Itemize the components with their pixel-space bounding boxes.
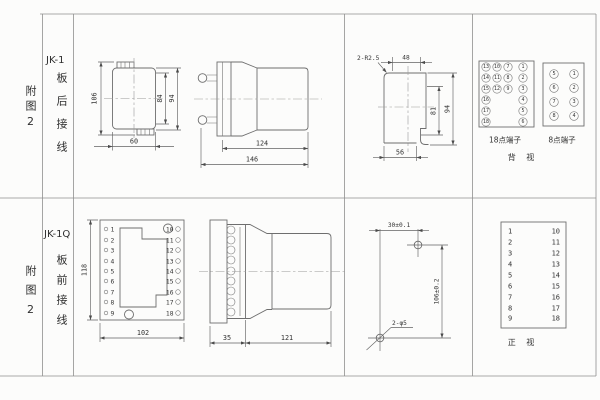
chamfer-top: [227, 225, 272, 234]
front-terminal-table: 110 211 312 413 514 615 716 817 918 正 视: [501, 222, 566, 347]
extension-lines: [87, 220, 98, 320]
terminal-number: 4: [522, 97, 525, 103]
terminal-number: 9: [507, 86, 510, 92]
terminal-number: 7: [111, 290, 115, 297]
terminal-dot: [104, 248, 108, 252]
terminal-number: 11: [166, 238, 174, 245]
terminal-number: 2: [522, 75, 525, 81]
terminal-number: 10: [494, 64, 500, 70]
terminal-number: 3: [522, 86, 525, 92]
dim-label-60: 60: [130, 138, 138, 146]
cutout-outline: [384, 73, 429, 145]
terminal-number: 8: [507, 75, 510, 81]
terminal-number: 5: [508, 272, 512, 280]
terminal-dot: [176, 248, 181, 253]
terminal-number: 6: [508, 283, 512, 291]
chamfer-bottom: [227, 310, 272, 319]
side-view-bottom-drawing: 35 121: [199, 220, 345, 347]
rear-view-label: 背 视: [508, 152, 539, 162]
panel-cutout-drawing: 2-R2.5 48 81 94 56: [357, 55, 457, 162]
hatch-lines: [141, 129, 150, 135]
terminal-number: 3: [111, 248, 115, 255]
screw-head: [198, 116, 207, 125]
screw-head: [198, 74, 207, 83]
dim-label-94: 94: [168, 94, 176, 102]
dim-label-56: 56: [396, 149, 404, 157]
terminal-number: 2: [508, 239, 512, 247]
terminal-screw: [227, 277, 235, 285]
dim-label-30: 30±0.1: [388, 222, 411, 229]
terminal-dot: [176, 290, 181, 295]
terminal-number: 1: [572, 71, 575, 77]
terminal-screw: [227, 226, 235, 234]
technical-drawing-svg: 106 84 94 60 124: [0, 0, 600, 400]
terminal-dot: [104, 227, 108, 231]
terminal-number: 17: [483, 108, 489, 114]
terminal-number: 7: [552, 99, 555, 105]
terminal-number: 11: [494, 75, 500, 81]
rear-view-drawing: 106 84 94 60: [91, 58, 182, 151]
terminal-number: 17: [552, 305, 560, 313]
terminal-block-8-label: 8点端子: [548, 135, 576, 145]
terminal-dot: [176, 259, 181, 264]
terminal-dot: [176, 300, 181, 305]
terminal-dot: [104, 259, 108, 263]
chamfer-top: [231, 62, 257, 68]
terminal-number: 12: [552, 250, 560, 258]
hatch-lines: [121, 62, 130, 68]
terminal-number: 4: [572, 113, 575, 119]
terminal-number: 15: [166, 279, 174, 286]
dim-label-84: 84: [156, 94, 164, 102]
terminal-number: 13: [552, 261, 560, 269]
dim-label-146: 146: [246, 156, 258, 164]
dim-label-118: 118: [81, 264, 89, 276]
drawing-sheet: 附图2 JK-1 板后接线 JK-1Q 板前接线 附图2: [0, 0, 600, 400]
dim-label-121: 121: [281, 334, 293, 342]
terminal-number: 6: [552, 85, 555, 91]
terminal-screw: [227, 308, 235, 316]
terminal-dot: [104, 238, 108, 242]
terminal-dot: [176, 238, 181, 243]
dim-label-102: 102: [137, 329, 149, 337]
terminal-dot: [176, 311, 181, 316]
terminal-dot: [104, 290, 108, 294]
terminal-number: 14: [483, 75, 489, 81]
dim-label-94b: 94: [444, 105, 452, 113]
radius-note: 2-R2.5: [357, 55, 380, 62]
terminal-number: 3: [508, 250, 512, 258]
terminal-number: 15: [483, 86, 489, 92]
terminal-number: 18: [483, 119, 489, 125]
terminal-number: 12: [166, 248, 174, 255]
leader-line: [378, 63, 387, 73]
terminal-block-8: 5 6 7 8 1 2 3 4 8点端子: [543, 63, 584, 145]
terminal-number: 2: [111, 238, 115, 245]
terminal-number: 7: [507, 64, 510, 70]
inner-cutout-outline: [120, 228, 167, 307]
screw-shaft: [207, 75, 217, 81]
terminal-number: 1: [522, 64, 525, 70]
terminal-number: 1: [508, 228, 512, 236]
terminal-number: 2: [572, 85, 575, 91]
dim-label-124: 124: [256, 140, 268, 148]
terminal-number: 8: [111, 300, 115, 307]
terminal-number: 6: [111, 279, 115, 286]
terminal-number: 16: [552, 294, 560, 302]
terminal-number: 10: [166, 227, 174, 234]
terminal-screw: [227, 236, 235, 244]
terminal-dot: [176, 269, 181, 274]
terminal-number: 8: [508, 305, 512, 313]
terminal-screw: [227, 298, 235, 306]
drill-plan-drawing: 30±0.1 106±0.2 2-φ5: [367, 222, 452, 351]
terminal-bump-top: [117, 62, 134, 68]
dim-label-81: 81: [430, 107, 438, 115]
terminal-number: 9: [111, 311, 115, 318]
dim-label-106: 106: [91, 92, 99, 104]
terminal-block-18: 13 14 15 16 17 18 10 11 12 7 8 9 1 2: [479, 61, 534, 145]
terminal-screw: [227, 287, 235, 295]
terminal-number: 16: [166, 290, 174, 297]
terminal-dot: [176, 227, 181, 232]
mount-hole: [125, 310, 134, 319]
terminal-number: 14: [166, 269, 174, 276]
terminal-block-18-label: 18点端子: [489, 135, 522, 145]
front-view-label: 正 视: [508, 337, 539, 347]
terminal-dot: [176, 279, 181, 284]
dim-label-35: 35: [223, 334, 231, 342]
terminal-screw: [227, 267, 235, 275]
terminal-number: 13: [483, 64, 489, 70]
dim-label-106v: 106±0.2: [434, 278, 441, 304]
terminal-number: 3: [572, 99, 575, 105]
terminal-dot: [104, 300, 108, 304]
terminal-number: 13: [166, 259, 174, 266]
terminal-number: 11: [552, 239, 560, 247]
terminal-number: 18: [166, 311, 174, 318]
terminal-number: 4: [508, 261, 512, 269]
leader-line: [367, 328, 392, 351]
terminal-dot: [104, 279, 108, 283]
side-view-top-drawing: 124 146: [194, 62, 322, 168]
front-plate-drawing: 1 2 3 4 5 6 7 8 9 10 11 12 13 14 15 16 1…: [81, 220, 185, 342]
terminal-dot: [104, 269, 108, 273]
terminal-number: 14: [552, 272, 560, 280]
terminal-number: 5: [522, 108, 525, 114]
terminal-screw: [227, 246, 235, 254]
terminal-screw: [227, 256, 235, 264]
terminal-number: 9: [508, 315, 512, 323]
hole-spec-label: 2-φ5: [392, 320, 407, 327]
terminal-number: 10: [552, 228, 560, 236]
terminal-number: 16: [483, 97, 489, 103]
chamfer-bottom: [231, 130, 257, 136]
terminal-number: 8: [552, 113, 555, 119]
terminal-number: 5: [111, 269, 115, 276]
terminal-number: 6: [522, 119, 525, 125]
terminal-number: 1: [111, 227, 115, 234]
terminal-number: 18: [552, 315, 560, 323]
terminal-bump-bottom: [137, 129, 154, 135]
terminal-number: 15: [552, 283, 560, 291]
terminal-number: 4: [111, 259, 115, 266]
terminal-number: 17: [166, 300, 174, 307]
screw-shaft: [207, 117, 217, 123]
terminal-number: 12: [494, 86, 500, 92]
terminal-number: 5: [552, 71, 555, 77]
terminal-dot: [104, 311, 108, 315]
terminal-number: 7: [508, 294, 512, 302]
dim-label-48: 48: [402, 55, 410, 62]
